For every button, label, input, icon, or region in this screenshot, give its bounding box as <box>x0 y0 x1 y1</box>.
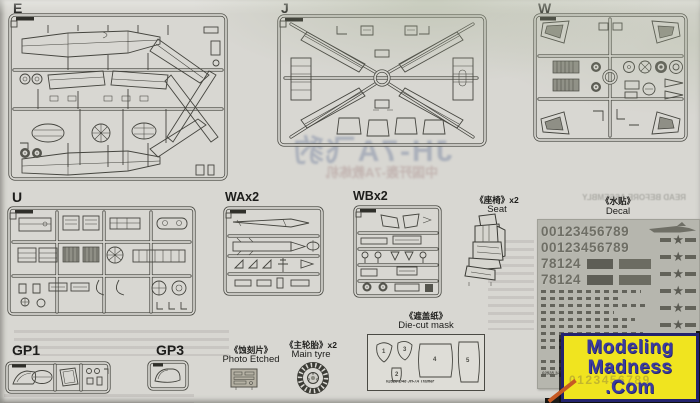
sprue-e-drawing <box>8 13 228 181</box>
sprue-gp3-drawing <box>147 360 189 391</box>
decal-label-en: Decal <box>578 206 658 217</box>
pla-star-insignia: ★ <box>660 285 696 297</box>
pla-star-insignia: ★ <box>660 234 696 246</box>
main-tyre-drawing <box>297 358 329 398</box>
pla-star-insignia: ★ <box>660 319 696 331</box>
ejection-seat-drawing <box>460 212 512 288</box>
star-icon: ★ <box>672 268 684 280</box>
sprue-wb-drawing <box>353 205 442 298</box>
sprue-u-drawing <box>7 206 196 316</box>
decal-insignia-column: ★ ★ ★ ★ ★ ★ <box>660 234 696 331</box>
die-cut-mask-box: 1 3 2 4 5 02828 1/48 JH-7A Trainer <box>367 334 485 391</box>
sprue-label-gp3: GP3 <box>156 342 184 358</box>
sprue-label-gp1: GP1 <box>12 342 40 358</box>
star-icon: ★ <box>672 285 684 297</box>
photo-etched-fret-drawing <box>228 365 260 391</box>
watermark-line-1: Modeling <box>564 338 696 358</box>
sprue-label-wa: WAx2 <box>225 190 259 204</box>
instruction-sheet-page: JH-7A飞豹 中国歼轰-7A教练机 READ BEFORE ASSEMBLY … <box>0 0 700 403</box>
decal-number-row: 00123456789 <box>541 240 629 255</box>
sprue-wa-drawing <box>223 206 324 296</box>
main-tyre-label-en: Main tyre <box>266 349 356 360</box>
bleedthrough-text-block <box>4 394 194 403</box>
pla-star-insignia: ★ <box>660 268 696 280</box>
star-icon: ★ <box>672 302 684 314</box>
sprue-w-drawing <box>533 13 689 142</box>
seat-label-en: Seat <box>460 204 534 215</box>
pla-star-insignia: ★ <box>660 302 696 314</box>
star-icon: ★ <box>672 319 684 331</box>
watermark-line-2: Madness <box>564 358 696 378</box>
decal-number-row: 00123456789 <box>541 224 629 239</box>
fuselage-half-part <box>22 119 206 175</box>
sprue-label-w: W <box>538 0 551 16</box>
pla-star-insignia: ★ <box>660 251 696 263</box>
star-icon: ★ <box>672 251 684 263</box>
mask-shapes-drawing <box>368 335 484 390</box>
mask-label-en: Die-cut mask <box>370 320 482 331</box>
bleedthrough-kit-subtitle: 中国歼轰-7A教练机 <box>292 162 472 181</box>
sprue-label-u: U <box>12 189 22 205</box>
decal-number-row: 78124 <box>541 256 651 271</box>
modeling-madness-watermark: 0123456789 Modeling Madness .Com <box>561 333 699 402</box>
bleedthrough-text-block <box>14 330 229 356</box>
star-icon: ★ <box>672 234 684 246</box>
sprue-label-e: E <box>13 0 22 16</box>
sprue-label-wb: WBx2 <box>353 189 388 203</box>
sprue-j-drawing <box>277 14 488 148</box>
sprue-gp1-drawing <box>5 361 111 394</box>
sprue-label-j: J <box>281 0 289 16</box>
decal-number-row: 78124 <box>541 272 651 287</box>
watermark-line-3: .Com <box>564 378 696 398</box>
